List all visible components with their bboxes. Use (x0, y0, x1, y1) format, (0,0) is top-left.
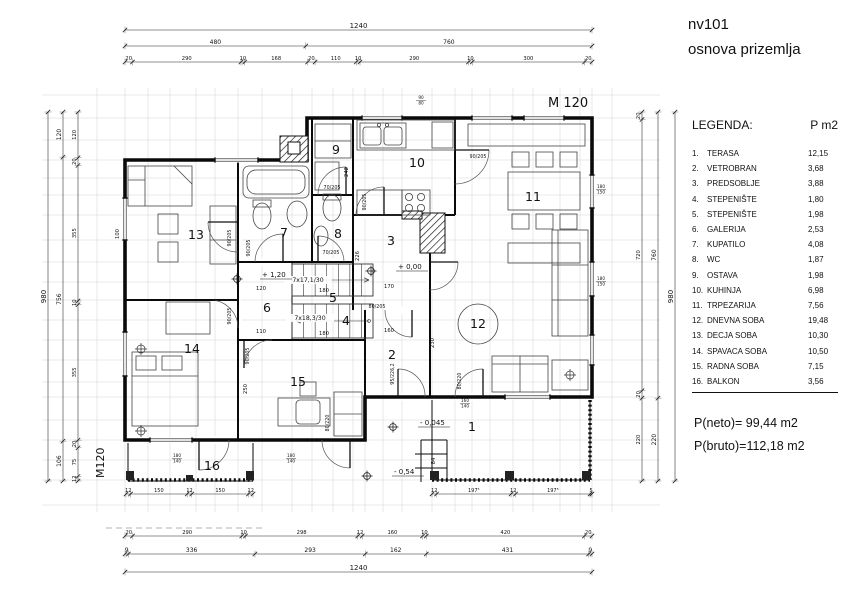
dim-label: 20 (585, 530, 592, 536)
legend-item: 9.OSTAVA1,98 (692, 268, 838, 283)
room-number-5: 5 (329, 290, 337, 305)
legend-lnum: 5. (692, 207, 707, 222)
dim-label: 298 (297, 530, 307, 536)
legend-lnum: 9. (692, 268, 707, 283)
flue-hatch (420, 213, 445, 253)
inner-dim-label: 110 (256, 329, 266, 335)
legend-lnum: 4. (692, 192, 707, 207)
dim-label: 431 (502, 547, 514, 554)
legend-item: 6.GALERIJA2,53 (692, 222, 838, 237)
dim-label: 12 (248, 488, 254, 494)
floor-plan: 1240480760202901016820110102901030020202… (0, 0, 690, 595)
legend-lnum: 3. (692, 176, 707, 191)
bed-room14 (132, 302, 210, 426)
dim-label: 160 (387, 530, 397, 536)
dim-label: 150 (154, 488, 164, 494)
dim-label: 1240 (350, 564, 368, 572)
dim-label: 980 (667, 290, 675, 303)
legend-item: 13.DECJA SOBA10,30 (692, 328, 838, 343)
legend-larea: 19,48 (808, 313, 838, 328)
inner-dim-label: 160 (384, 328, 394, 334)
dim-label: 756 (56, 293, 63, 305)
dim-label: 10 (72, 299, 78, 306)
legend-lnum: 7. (692, 237, 707, 252)
dim-label: 120 (72, 130, 78, 140)
door-size-label: 90/205 (246, 240, 252, 257)
window (122, 198, 127, 240)
room-number-10: 10 (409, 155, 425, 170)
dim-label: 336 (186, 547, 198, 554)
dim-label: 20 (125, 56, 132, 62)
dim-label: 293 (304, 547, 316, 554)
legend-item: 12.DNEVNA SOBA19,48 (692, 313, 838, 328)
legend: LEGENDA: P m2 1.TERASA12,152.VETROBRAN3,… (692, 118, 838, 393)
scale-label-side: M120 (94, 448, 107, 479)
legend-larea: 6,98 (808, 283, 838, 298)
windows (122, 115, 594, 442)
gross-area: P(bruto)=112,18 m2 (694, 435, 805, 458)
legend-lnum: 14. (692, 344, 707, 359)
inner-dim-label: 100 (115, 229, 121, 239)
legend-larea: 7,56 (808, 298, 838, 313)
dim-label: 20 (636, 112, 642, 119)
room-number-7: 7 (280, 225, 288, 240)
dim-label: 12 (186, 488, 192, 494)
door-size-label: 95/226,2 (390, 363, 396, 384)
dim-label: 355 (72, 367, 78, 377)
dim-chain: 93362931624319 (123, 547, 594, 557)
thin-walls (128, 262, 590, 482)
window (589, 335, 594, 365)
door-size-label: 90/205 (227, 230, 233, 247)
dim-chain: 1202035510355207512 (72, 110, 81, 483)
window-parapet: 80 (418, 101, 424, 106)
dim-chain: 12197⁵12197⁵5 (430, 488, 594, 497)
dim-label: 290 (182, 530, 192, 536)
window (589, 262, 594, 296)
window (122, 332, 127, 376)
vent-symbol (135, 425, 147, 437)
inner-dim-label: 120 (256, 286, 266, 292)
window-width: 160 (461, 398, 469, 403)
door-size-label: 70/205 (324, 185, 341, 191)
window-mark: 9080 (416, 95, 426, 106)
dim-label: 20 (72, 158, 78, 165)
legend-item: 10.KUHINJA6,98 (692, 283, 838, 298)
legend-lnum: 16. (692, 374, 707, 389)
legend-area-header: P m2 (810, 118, 838, 132)
dim-label: 75 (72, 459, 78, 466)
dim-label: 980 (40, 290, 48, 303)
dim-label: 120 (56, 129, 63, 141)
room-number-1: 1 (468, 419, 476, 434)
dim-label: 760 (443, 39, 455, 46)
door-size-label: 90/205 (362, 194, 368, 211)
dim-chain: 980 (40, 110, 51, 483)
level-label: + 0,00 (398, 263, 422, 271)
window-mark: 160140 (460, 398, 470, 409)
window-mark: 180150 (596, 184, 606, 195)
window (589, 175, 594, 208)
inner-dim-label: 180 (319, 331, 329, 337)
room-number-6: 6 (263, 300, 271, 315)
legend-item: 11.TRPEZARIJA7,56 (692, 298, 838, 313)
legend-lname: GALERIJA (707, 222, 808, 237)
legend-item: 16.BALKON3,56 (692, 374, 838, 389)
legend-lname: KUHINJA (707, 283, 808, 298)
legend-lname: DNEVNA SOBA (707, 313, 808, 328)
scale-label: M 120 (548, 96, 588, 111)
dim-label: 760 (651, 249, 658, 261)
dim-chain: 760220 (651, 110, 661, 483)
room-number-15: 15 (290, 374, 306, 389)
dim-label: 20 (308, 56, 315, 62)
inner-dim-label: 180 (319, 288, 329, 294)
dim-label: 20 (125, 530, 132, 536)
dim-label: 20 (636, 391, 642, 398)
legend-larea: 3,68 (808, 161, 838, 176)
room-number-13: 13 (188, 227, 204, 242)
window-parapet: 150 (597, 190, 605, 195)
dim-label: 110 (331, 56, 341, 62)
room-number-11: 11 (525, 189, 541, 204)
dim-label: 10 (240, 56, 247, 62)
dim-label: 10 (421, 530, 428, 536)
room-number-4: 4 (342, 313, 350, 328)
drawing-title: osnova prizemlja (688, 37, 801, 62)
legend-larea: 3,56 (808, 374, 838, 389)
inner-dim-label: 242 (344, 167, 350, 177)
legend-larea: 1,98 (808, 268, 838, 283)
room-number-2: 2 (388, 347, 396, 362)
legend-lname: STEPENIŠTE (707, 192, 808, 207)
legend-lname: KUPATILO (707, 237, 808, 252)
door-size-label: 90/205 (245, 348, 251, 365)
legend-item: 14.SPAVACA SOBA10,50 (692, 344, 838, 359)
legend-item: 3.PREDSOBLJE3,88 (692, 176, 838, 191)
level-marker (388, 422, 399, 433)
legend-lname: TRPEZARIJA (707, 298, 808, 313)
dim-label: 220 (636, 435, 642, 445)
door-size-label: 90/205 (470, 154, 487, 160)
window-parapet: 140 (173, 459, 181, 464)
legend-title: LEGENDA: (692, 118, 753, 132)
dim-label: 220 (651, 434, 658, 446)
dim-label: 162 (390, 547, 402, 554)
legend-lnum: 2. (692, 161, 707, 176)
dim-label: 480 (210, 39, 222, 46)
door-size-label: 80/220 (457, 373, 463, 390)
legend-lnum: 13. (692, 328, 707, 343)
legend-lname: DECJA SOBA (707, 328, 808, 343)
drawing-number: nv101 (688, 12, 801, 37)
legend-larea: 4,08 (808, 237, 838, 252)
legend-lname: SPAVACA SOBA (707, 344, 808, 359)
window-width: 180 (597, 276, 605, 281)
window (215, 157, 258, 162)
inner-dim-label: 170 (384, 284, 394, 290)
dim-label: 290 (409, 56, 419, 62)
dim-label: 9 (125, 547, 129, 554)
level-label: - 0,54 (394, 468, 415, 476)
room-number-3: 3 (387, 233, 395, 248)
legend-lname: WC (707, 252, 808, 267)
legend-item: 7.KUPATILO4,08 (692, 237, 838, 252)
dim-chain: 120756106 (56, 110, 66, 483)
dim-chain: 2072020220 (636, 110, 645, 483)
window (505, 394, 550, 399)
dim-label: 1240 (350, 22, 368, 30)
legend-larea: 10,50 (808, 344, 838, 359)
stair-label: 7x17,1/30 (292, 277, 323, 284)
dim-label: 9 (588, 547, 592, 554)
window-parapet: 150 (597, 282, 605, 287)
drawing-sheet: 1240480760202901016820110102901030020202… (0, 0, 841, 595)
net-area: P(neto)= 99,44 m2 (694, 412, 805, 435)
dim-label: 10 (355, 56, 362, 62)
legend-lnum: 1. (692, 146, 707, 161)
legend-item: 15.RADNA SOBA7,15 (692, 359, 838, 374)
dim-label: 197⁵ (468, 488, 480, 494)
window-parapet: 140 (461, 404, 469, 409)
window (150, 437, 192, 442)
dim-label: 12 (125, 488, 131, 494)
legend-lname: RADNA SOBA (707, 359, 808, 374)
dim-chain: 2029010298121601042020 (123, 530, 594, 539)
title-block: nv101 osnova prizemlja (688, 12, 801, 62)
legend-lnum: 11. (692, 298, 707, 313)
legend-larea: 12,15 (808, 146, 838, 161)
area-totals: P(neto)= 99,44 m2 P(bruto)=112,18 m2 (694, 412, 805, 458)
living-room-furniture (458, 230, 588, 392)
legend-lnum: 10. (692, 283, 707, 298)
level-marker (232, 274, 243, 285)
legend-item: 8.WC1,87 (692, 252, 838, 267)
inner-dim-label: 84 (431, 457, 437, 464)
legend-larea: 3,88 (808, 176, 838, 191)
door-size-label: 80/205 (369, 304, 386, 310)
legend-item: 2.VETROBRAN3,68 (692, 161, 838, 176)
vent-symbol (135, 343, 147, 355)
legend-lname: STEPENIŠTE (707, 207, 808, 222)
kitchen-fixtures (357, 120, 455, 215)
legend-lname: VETROBRAN (707, 161, 808, 176)
dim-label: 12 (510, 488, 516, 494)
legend-larea: 1,98 (808, 207, 838, 222)
dim-label: 168 (271, 56, 281, 62)
inner-dim-label: 226 (355, 251, 361, 261)
dim-chain: 202901016820110102901030020 (123, 56, 594, 65)
legend-lname: PREDSOBLJE (707, 176, 808, 191)
legend-larea: 7,15 (808, 359, 838, 374)
legend-lnum: 15. (692, 359, 707, 374)
dim-chain: 1240 (123, 22, 594, 33)
window-width: 90 (418, 95, 424, 100)
room-number-8: 8 (334, 226, 342, 241)
window-width: 180 (597, 184, 605, 189)
dim-chain: 1240 (123, 564, 594, 575)
dim-label: 12 (357, 530, 364, 536)
window (524, 115, 564, 120)
door-size-label: 90/205 (227, 308, 233, 325)
legend-larea: 1,87 (808, 252, 838, 267)
dim-label: 290 (182, 56, 192, 62)
legend-item-list: 1.TERASA12,152.VETROBRAN3,683.PREDSOBLJE… (692, 146, 838, 393)
legend-lnum: 12. (692, 313, 707, 328)
dim-label: 5 (589, 488, 592, 494)
level-label: - 0,045 (420, 419, 445, 427)
legend-larea: 10,30 (808, 328, 838, 343)
legend-lnum: 6. (692, 222, 707, 237)
dim-label: 20 (585, 56, 592, 62)
room-number-12: 12 (470, 316, 486, 331)
window-mark: 180140 (286, 453, 296, 464)
legend-lname: OSTAVA (707, 268, 808, 283)
room-number-9: 9 (332, 142, 340, 157)
room-number-16: 16 (204, 458, 220, 473)
dim-label: 300 (523, 56, 533, 62)
dim-label: 720 (636, 250, 642, 260)
window-mark: 180150 (596, 276, 606, 287)
legend-item: 1.TERASA12,15 (692, 146, 838, 161)
legend-larea: 2,53 (808, 222, 838, 237)
vent-symbol (564, 369, 576, 381)
stair-label: 7x18,3/30 (294, 315, 325, 322)
dim-label: 12 (72, 475, 78, 482)
legend-lname: BALKON (707, 374, 808, 389)
bathroom-fixtures (243, 166, 309, 229)
legend-lname: TERASA (707, 146, 808, 161)
door-size-label: 70/205 (323, 250, 340, 256)
dim-label: 420 (500, 530, 510, 536)
dim-label: 20 (72, 441, 78, 448)
dim-label: 355 (72, 228, 78, 238)
window-parapet: 140 (287, 459, 295, 464)
room-number-14: 14 (184, 341, 200, 356)
chimney-core (288, 142, 300, 154)
window (472, 115, 512, 120)
level-marker (366, 266, 377, 277)
inner-dim-label: 230 (430, 338, 436, 348)
dim-label: 10 (467, 56, 474, 62)
desk-room15 (278, 382, 362, 436)
legend-item: 4.STEPENIŠTE1,80 (692, 192, 838, 207)
dim-label: 12 (431, 488, 437, 494)
dim-chain: 980 (667, 110, 678, 483)
inner-dim-label: 250 (243, 384, 249, 394)
door-gap (385, 306, 412, 314)
door-size-label: 80/220 (325, 415, 331, 432)
legend-item: 5.STEPENIŠTE1,98 (692, 207, 838, 222)
window-mark: 180140 (172, 453, 182, 464)
dim-chain: 480760 (123, 39, 594, 49)
dim-label: 150 (215, 488, 225, 494)
level-label: + 1,20 (262, 271, 286, 279)
dim-label: 106 (56, 455, 63, 467)
window-width: 180 (173, 453, 181, 458)
window-width: 180 (287, 453, 295, 458)
dim-label: 10 (240, 530, 247, 536)
dim-chain: 121501215012 (124, 488, 255, 497)
legend-lnum: 8. (692, 252, 707, 267)
legend-larea: 1,80 (808, 192, 838, 207)
dim-label: 197⁵ (547, 488, 559, 494)
